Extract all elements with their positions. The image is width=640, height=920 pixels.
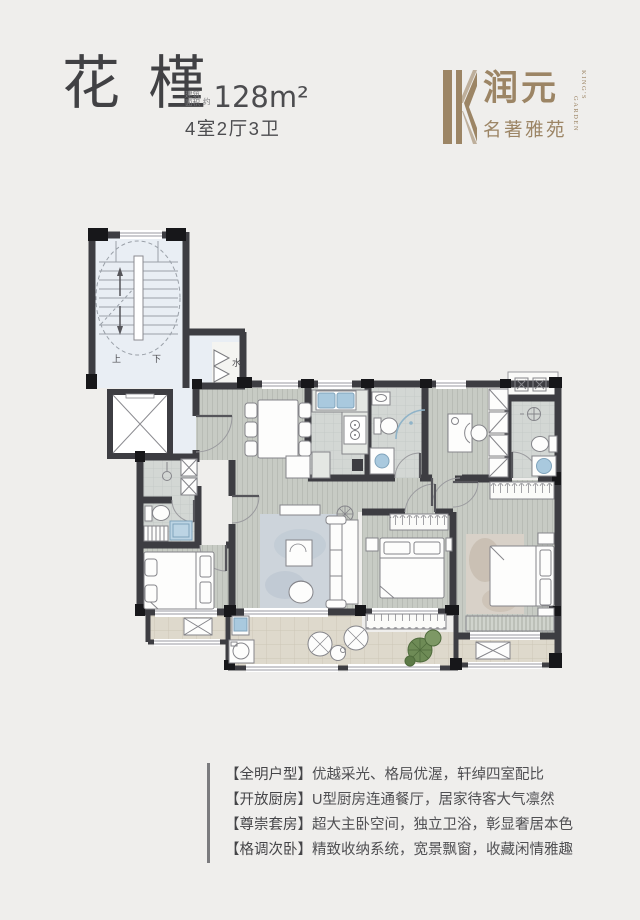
plan-specs: 建筑 面积 约 128m² 4室2厅3卫: [185, 82, 345, 141]
elevator: [110, 392, 170, 456]
feature-item: 【尊崇套房】超大主卧空间，独立卫浴，彰显奢居本色: [225, 813, 573, 838]
feature-list: 【全明户型】优越采光、格局优渥，轩绰四室配比 【开放厨房】U型厨房连通餐厅，居家…: [207, 763, 573, 863]
feature-item: 【全明户型】优越采光、格局优渥，轩绰四室配比: [225, 763, 573, 788]
feature-item: 【格调次卧】精致收纳系统，宽景飘窗，收藏闲情雅趣: [225, 838, 573, 863]
area-value: 128m²: [214, 82, 309, 112]
brand-name-en: GARDEN KING'S: [572, 70, 587, 132]
feature-item: 【开放厨房】U型厨房连通餐厅，居家待客大气凛然: [225, 788, 573, 813]
water-meter-label: 水: [232, 357, 241, 368]
dining-set: [245, 400, 311, 458]
floor-plan: 上 下: [80, 220, 580, 680]
brand-subtitle-cn: 名著雅苑: [483, 116, 567, 142]
layout-spec: 4室2厅3卫: [185, 115, 345, 141]
stairwell: [96, 241, 180, 355]
stairs-up-label: 上: [112, 354, 121, 364]
living-furniture: [260, 505, 358, 608]
brand-logo: 润元 名著雅苑 GARDEN KING'S: [443, 70, 587, 144]
area-label: 建筑 面积: [185, 91, 200, 112]
stairs-down-label: 下: [152, 354, 161, 364]
brand-name-cn: 润元: [483, 70, 567, 108]
area-approx: 约: [203, 96, 211, 107]
brand-k-mark-icon: [443, 70, 477, 144]
